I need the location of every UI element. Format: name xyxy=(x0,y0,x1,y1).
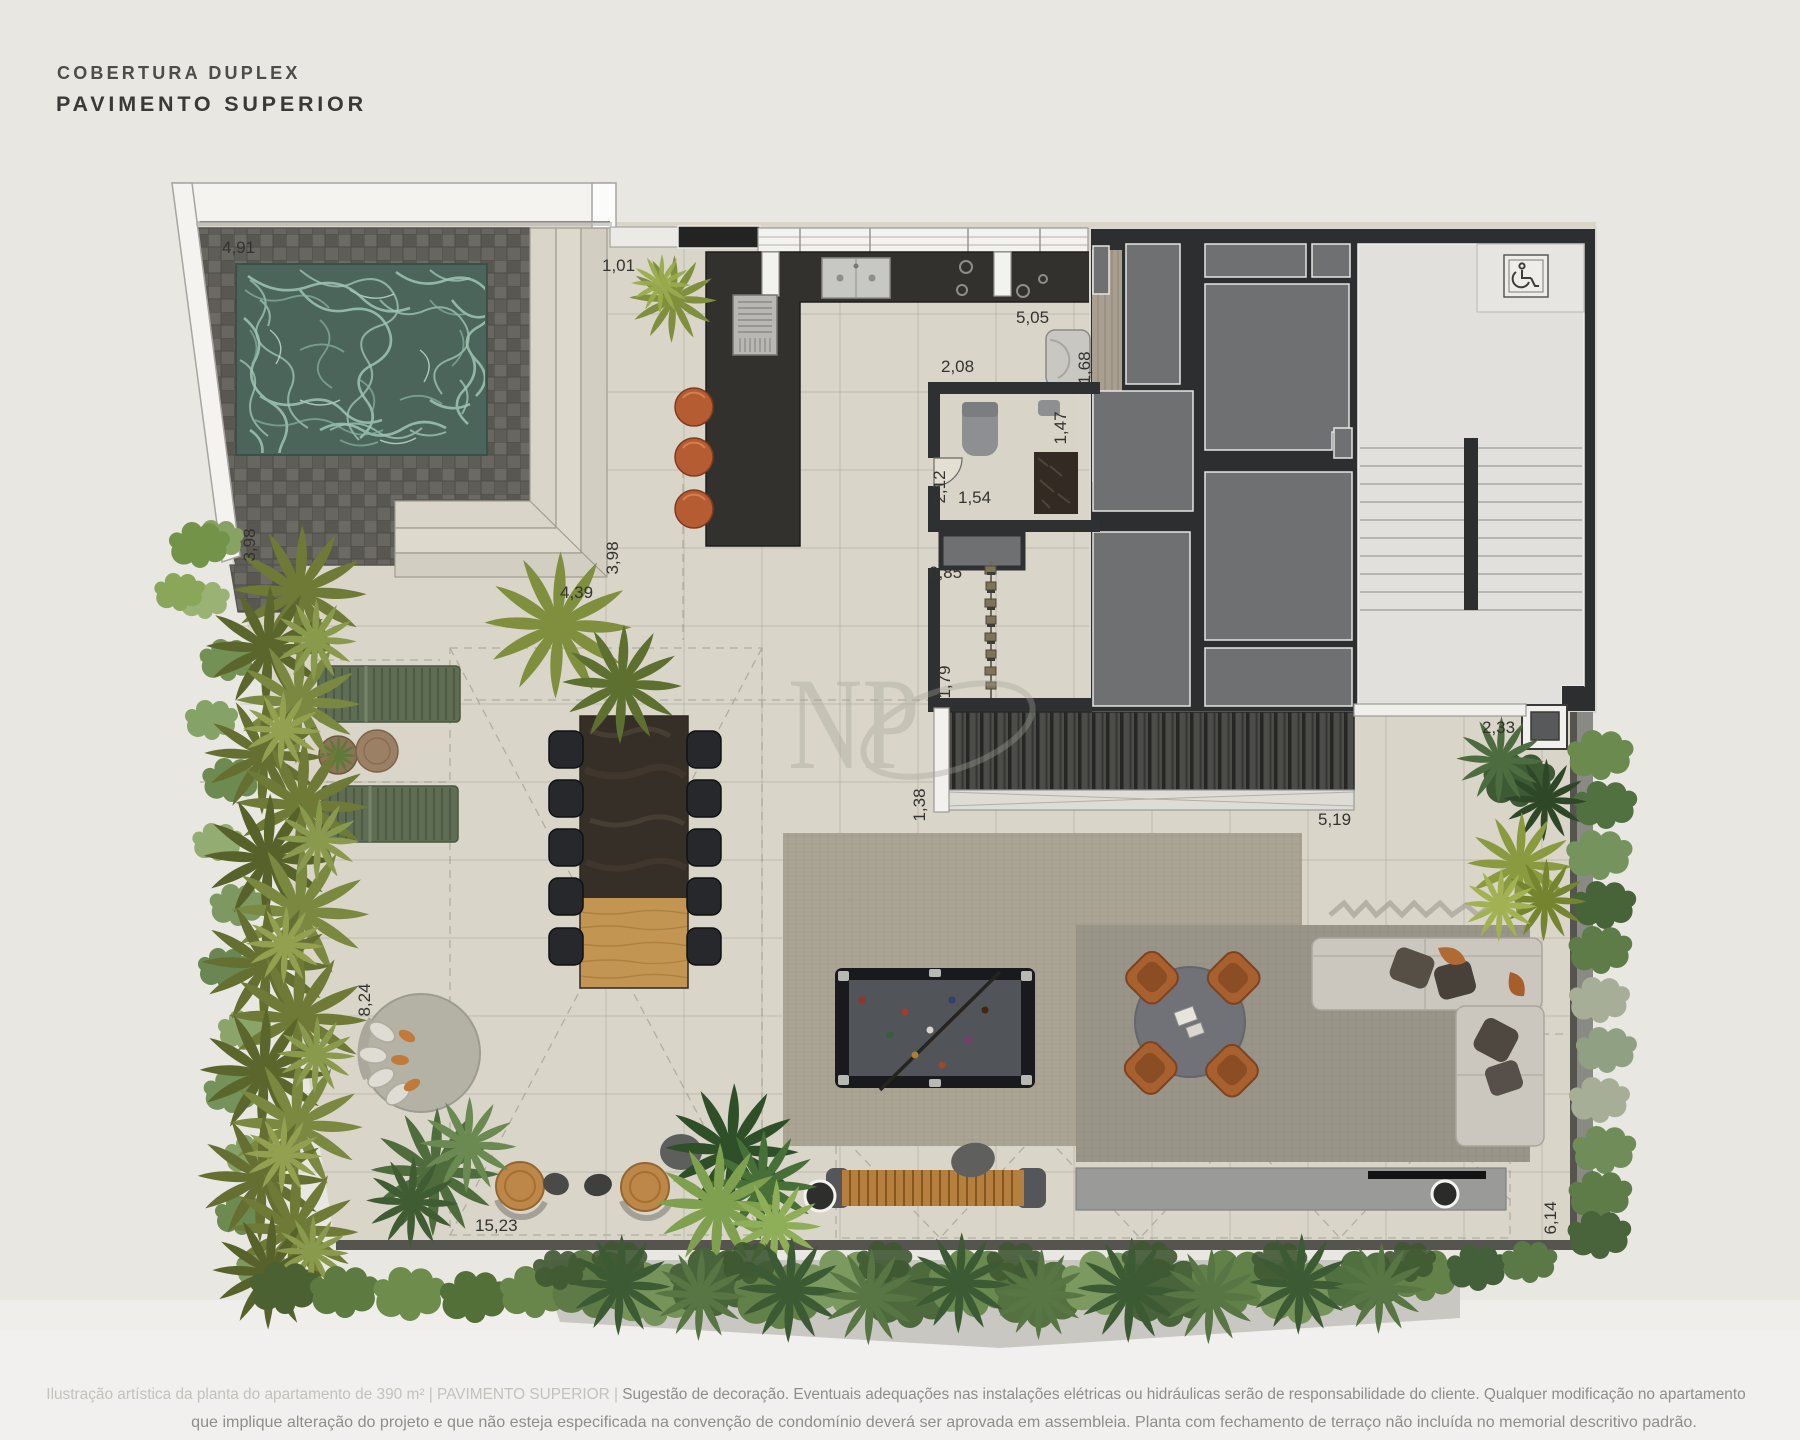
svg-text:3,98: 3,98 xyxy=(240,528,259,561)
svg-text:1,79: 1,79 xyxy=(935,665,954,698)
svg-text:1,38: 1,38 xyxy=(910,788,929,821)
svg-text:2,12: 2,12 xyxy=(930,470,949,503)
svg-text:Ilustração artística da planta: Ilustração artística da planta do aparta… xyxy=(46,1386,1745,1403)
svg-text:1,68: 1,68 xyxy=(1075,351,1094,384)
svg-text:1,54: 1,54 xyxy=(958,488,991,507)
svg-text:6,14: 6,14 xyxy=(1541,1201,1560,1234)
svg-text:5,05: 5,05 xyxy=(1016,308,1049,327)
svg-text:1,47: 1,47 xyxy=(1051,411,1070,444)
svg-text:1,01: 1,01 xyxy=(602,256,635,275)
svg-text:5,19: 5,19 xyxy=(1318,810,1351,829)
svg-text:15,23: 15,23 xyxy=(475,1216,518,1235)
svg-text:4,91: 4,91 xyxy=(222,238,255,257)
svg-text:PAVIMENTO SUPERIOR: PAVIMENTO SUPERIOR xyxy=(56,92,367,116)
svg-text:2,08: 2,08 xyxy=(941,357,974,376)
svg-text:4,39: 4,39 xyxy=(560,583,593,602)
svg-text:0,85: 0,85 xyxy=(929,563,962,582)
svg-text:COBERTURA DUPLEX: COBERTURA DUPLEX xyxy=(57,63,301,83)
svg-text:que implique alteração do proj: que implique alteração do projeto e que … xyxy=(191,1413,1697,1431)
svg-text:8,24: 8,24 xyxy=(355,983,374,1016)
svg-text:2,33: 2,33 xyxy=(1482,718,1515,737)
svg-text:3,98: 3,98 xyxy=(603,541,622,574)
